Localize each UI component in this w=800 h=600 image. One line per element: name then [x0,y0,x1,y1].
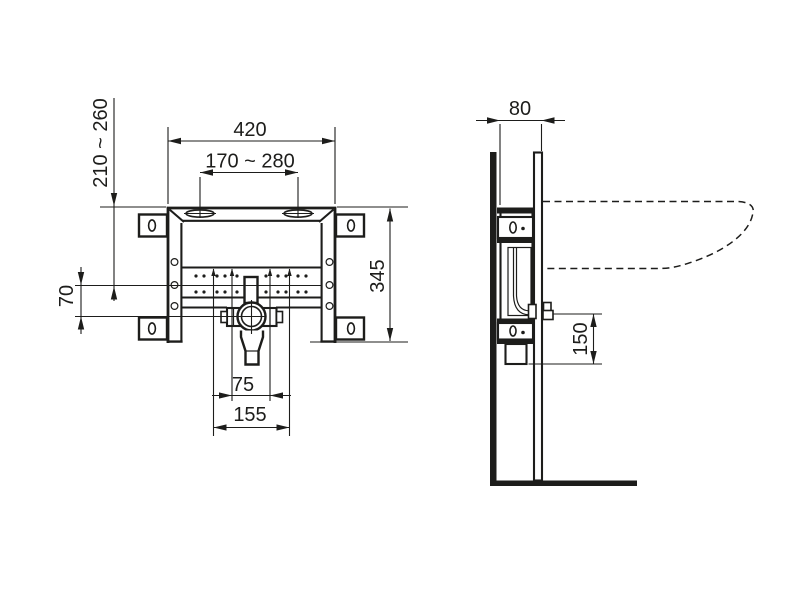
dim-label-drain-support-width: 155 [233,404,266,426]
dim-label-drain-outlet-drop: 150 [570,322,592,355]
side-view: 80 150 [476,98,753,486]
drain-outlet-pipe [241,331,263,365]
dim-label-height-adjust-range: 210 ~ 260 [90,98,112,188]
dim-label-frame-depth: 80 [509,98,531,120]
wall-rail [490,152,497,482]
dim-label-frame-height: 345 [367,259,389,292]
floor-plate [490,481,637,487]
dim-label-tap-rail-to-drain: 70 [56,285,78,307]
washbasin-outline [543,202,753,269]
dim-label-frame-width: 420 [233,119,266,141]
front-view: 420 170 ~ 280 210 ~ 260 70 345 75 155 [56,98,408,436]
technical-drawing-page: 420 170 ~ 280 210 ~ 260 70 345 75 155 [0,0,800,600]
side-drain-outlet [506,344,527,364]
installation-frame-drawing: 420 170 ~ 280 210 ~ 260 70 345 75 155 [0,0,800,600]
drain-inlet [245,277,258,303]
front-drain-assembly [181,277,322,365]
dim-label-drain-clamp-width: 75 [232,374,254,396]
dim-label-fixing-slot-spacing: 170 ~ 280 [205,151,295,173]
